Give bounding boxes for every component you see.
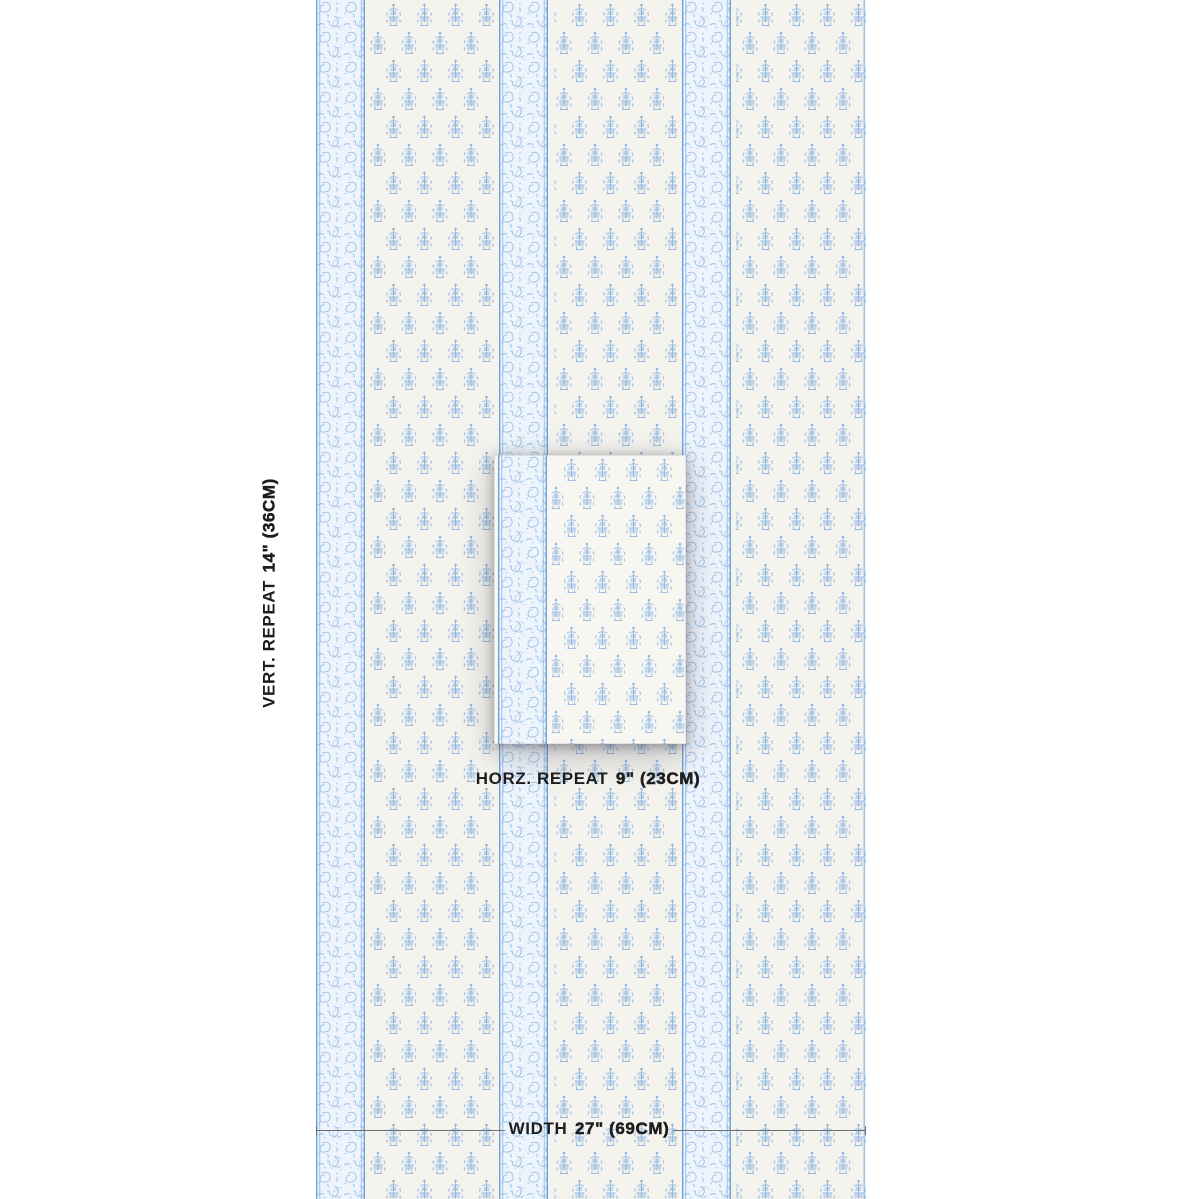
horizontal-repeat-text: HORZ. REPEAT: [476, 769, 609, 788]
width-value: 27" (69CM): [575, 1119, 669, 1138]
width-dimension-line-left: [316, 1130, 505, 1131]
vertical-repeat-text: VERT. REPEAT: [260, 580, 279, 708]
vertical-repeat-label: VERT. REPEAT14" (36CM): [261, 478, 280, 708]
width-dimension-tick-right: [865, 1126, 866, 1135]
wallpaper-artwork: [0, 0, 1200, 1199]
paisley-stripe: [311, 0, 370, 1199]
width-dimension-line-right: [673, 1130, 866, 1131]
horizontal-repeat-value: 9" (23CM): [616, 769, 700, 788]
width-dimension-tick-left: [316, 1126, 317, 1135]
width-text: WIDTH: [509, 1119, 568, 1138]
vertical-repeat-value: 14" (36CM): [260, 478, 279, 572]
wallpaper-product-diagram: VERT. REPEAT14" (36CM) HORZ. REPEAT9" (2…: [0, 0, 1200, 1199]
width-label: WIDTH27" (69CM): [509, 1120, 670, 1139]
panel-right-edge-line: [864, 0, 866, 1199]
horizontal-repeat-label: HORZ. REPEAT9" (23CM): [476, 770, 700, 789]
